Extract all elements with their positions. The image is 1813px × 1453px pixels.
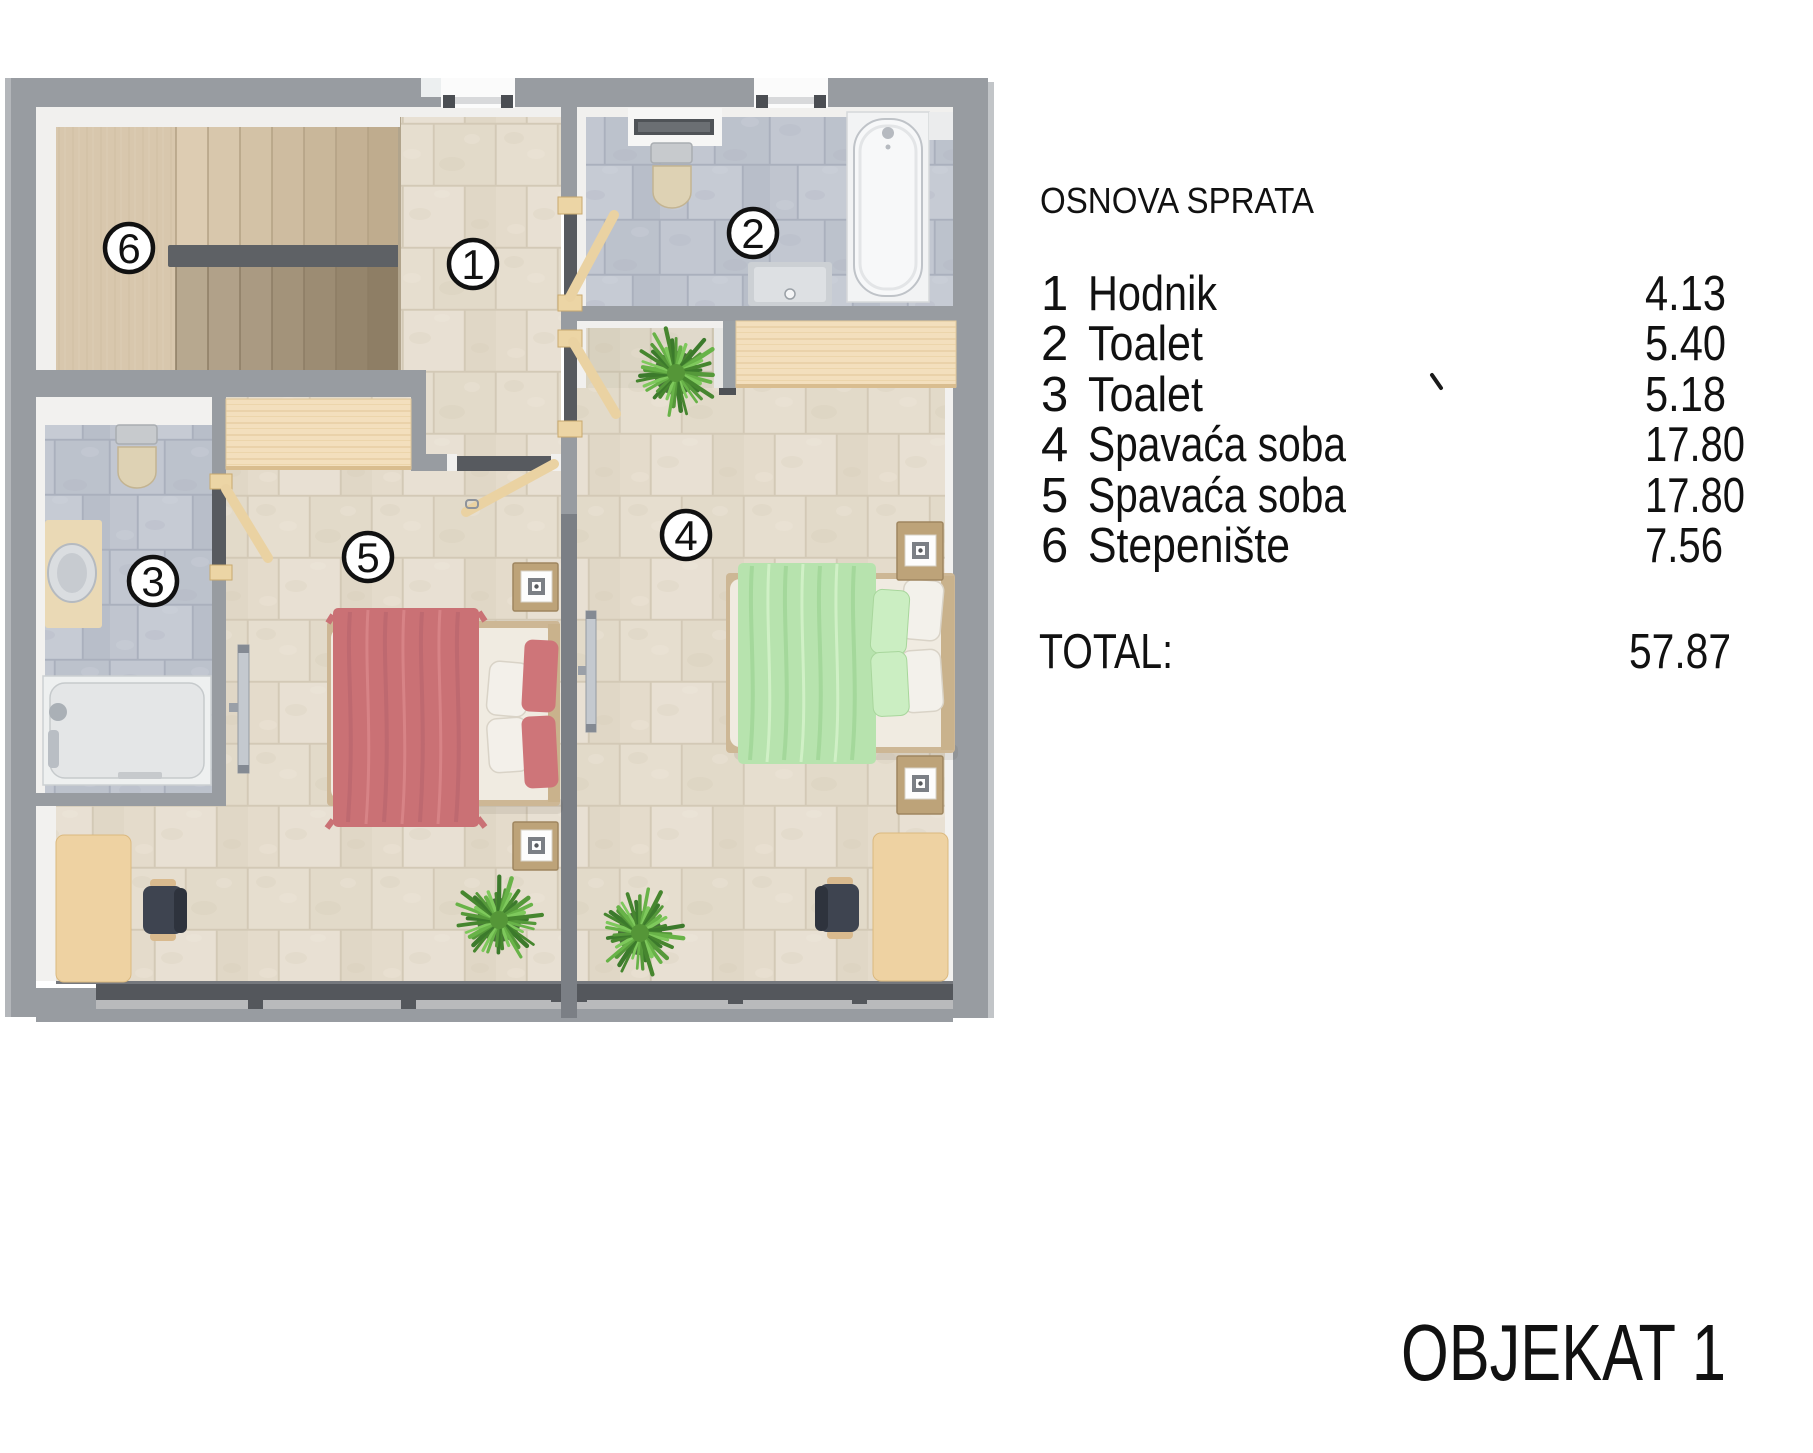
svg-text:17.80: 17.80 <box>1645 418 1745 472</box>
svg-text:4: 4 <box>1041 418 1068 472</box>
svg-text:Toalet: Toalet <box>1088 368 1203 422</box>
svg-text:1: 1 <box>461 241 484 288</box>
svg-text:17.80: 17.80 <box>1645 469 1745 523</box>
svg-text:5.18: 5.18 <box>1645 368 1726 422</box>
svg-text:Hodnik: Hodnik <box>1088 267 1217 321</box>
svg-text:3: 3 <box>141 558 164 605</box>
svg-text:OBJEKAT 1: OBJEKAT 1 <box>1401 1308 1726 1397</box>
svg-text:5: 5 <box>356 534 379 581</box>
svg-text:2: 2 <box>741 210 764 257</box>
svg-text:Spavaća soba: Spavaća soba <box>1088 418 1347 472</box>
svg-text:Spavaća soba: Spavaća soba <box>1088 469 1347 523</box>
svg-text:3: 3 <box>1041 368 1068 422</box>
svg-text:2: 2 <box>1041 317 1068 371</box>
svg-text:6: 6 <box>117 225 140 272</box>
svg-text:1: 1 <box>1041 267 1068 321</box>
svg-text:Stepenište: Stepenište <box>1088 519 1290 573</box>
svg-text:5: 5 <box>1041 469 1068 523</box>
svg-text:TOTAL:: TOTAL: <box>1039 625 1173 679</box>
svg-text:OSNOVA SPRATA: OSNOVA SPRATA <box>1040 180 1314 221</box>
svg-text:Toalet: Toalet <box>1088 317 1203 371</box>
svg-text:7.56: 7.56 <box>1645 519 1723 573</box>
svg-text:6: 6 <box>1041 519 1068 573</box>
svg-text:4: 4 <box>674 512 697 559</box>
svg-text:5.40: 5.40 <box>1645 317 1726 371</box>
svg-text:57.87: 57.87 <box>1629 625 1731 679</box>
svg-text:4.13: 4.13 <box>1645 267 1726 321</box>
